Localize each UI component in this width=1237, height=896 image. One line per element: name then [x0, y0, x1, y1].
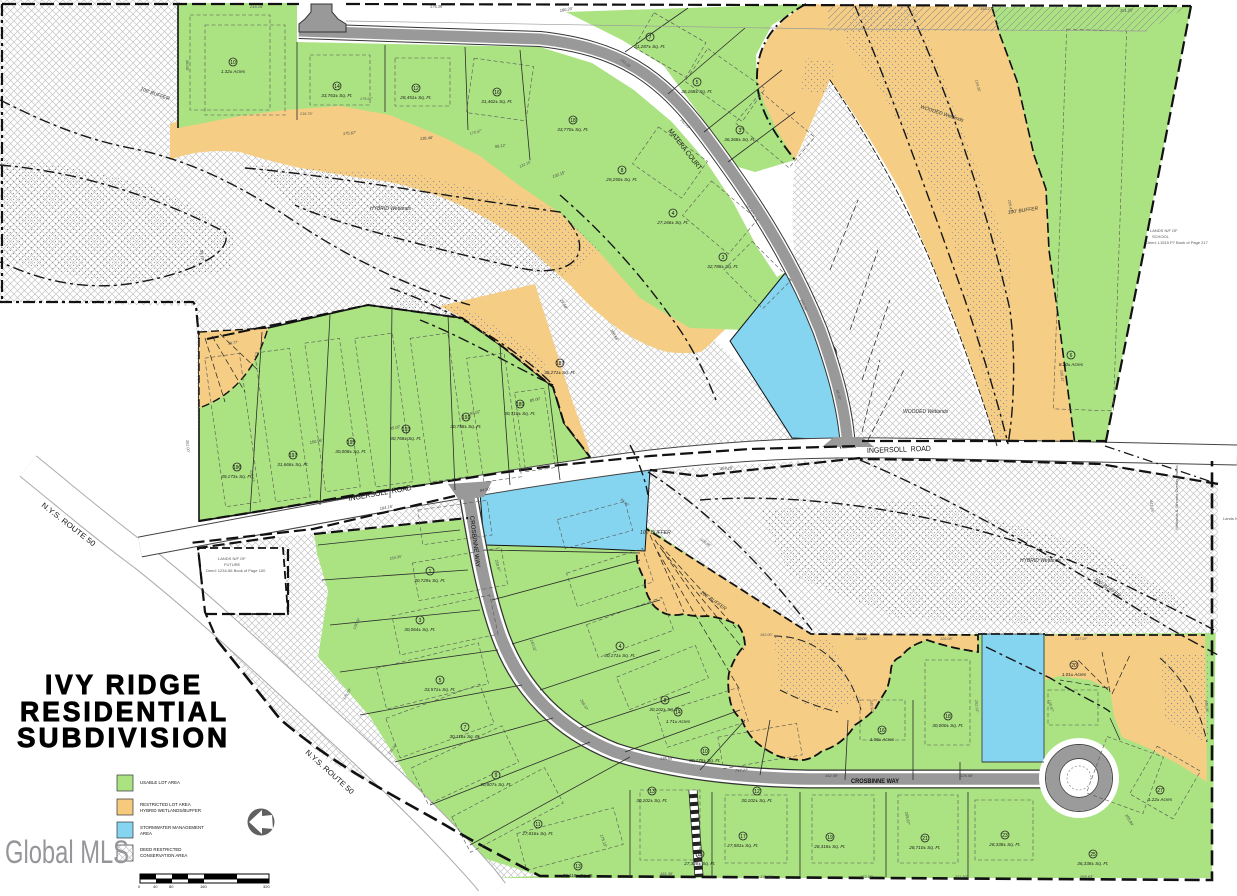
- svg-text:SCHOOL: SCHOOL: [1152, 234, 1170, 239]
- svg-text:189: 189: [516, 402, 525, 408]
- svg-text:30,118± Sq. Ft.: 30,118± Sq. Ft.: [562, 873, 593, 878]
- svg-text:16: 16: [494, 90, 500, 96]
- svg-text:175.67': 175.67': [360, 97, 373, 101]
- svg-text:195: 195: [347, 440, 356, 446]
- svg-text:27,816± Sq. Ft.: 27,816± Sq. Ft.: [521, 831, 553, 836]
- svg-text:170.93': 170.93': [760, 874, 773, 879]
- svg-text:30,758± Sq. Ft.: 30,758± Sq. Ft.: [450, 424, 481, 429]
- svg-text:1.06± Acres: 1.06± Acres: [870, 737, 895, 742]
- svg-text:16: 16: [879, 728, 885, 734]
- svg-text:193: 193: [402, 427, 411, 433]
- svg-text:1.32± Acres: 1.32± Acres: [221, 69, 246, 74]
- svg-text:AREA: AREA: [140, 831, 152, 836]
- svg-text:7: 7: [464, 725, 467, 731]
- svg-text:20: 20: [1071, 663, 1077, 669]
- svg-text:3: 3: [722, 255, 725, 261]
- svg-text:23: 23: [1002, 833, 1008, 839]
- svg-text:30,710± Sq. Ft.: 30,710± Sq. Ft.: [504, 411, 535, 416]
- svg-text:7: 7: [649, 35, 652, 41]
- svg-text:Deed: L1515 P7 Book of Page 21: Deed: L1515 P7 Book of Page 217: [1146, 240, 1209, 245]
- svg-text:36,168± Sq. Ft.: 36,168± Sq. Ft.: [681, 89, 712, 94]
- svg-text:Global MLS: Global MLS: [5, 834, 129, 870]
- svg-text:14: 14: [334, 84, 340, 90]
- svg-text:28,338± Sq. Ft.: 28,338± Sq. Ft.: [988, 842, 1020, 847]
- svg-text:33,571± Sq. Ft.: 33,571± Sq. Ft.: [424, 687, 455, 692]
- svg-text:31,462± Sq. Ft.: 31,462± Sq. Ft.: [481, 99, 512, 104]
- svg-text:30,175± Sq. Ft.: 30,175± Sq. Ft.: [689, 758, 720, 763]
- svg-text:8: 8: [664, 698, 667, 704]
- svg-text:10: 10: [230, 60, 236, 66]
- svg-text:9: 9: [495, 773, 498, 779]
- svg-text:12: 12: [754, 789, 760, 795]
- svg-text:31,666± Sq. Ft.: 31,666± Sq. Ft.: [277, 462, 308, 467]
- svg-text:30,768± Sq. Ft.: 30,768± Sq. Ft.: [390, 436, 421, 441]
- svg-text:32,788± Sq. Ft.: 32,788± Sq. Ft.: [707, 264, 738, 269]
- svg-text:19: 19: [827, 835, 833, 841]
- svg-text:25: 25: [1090, 852, 1096, 858]
- svg-text:269.63': 269.63': [1079, 874, 1093, 879]
- svg-text:28,710± Sq. Ft.: 28,710± Sq. Ft.: [908, 845, 940, 850]
- svg-text:DEED RESTRICTED: DEED RESTRICTED: [140, 847, 181, 852]
- svg-text:5: 5: [439, 678, 442, 684]
- svg-text:FUTURE: FUTURE: [224, 562, 241, 567]
- svg-text:35,271± Sq. Ft.: 35,271± Sq. Ft.: [544, 370, 575, 375]
- svg-text:172.00': 172.00': [860, 874, 873, 879]
- svg-text:31,287± Sq. Ft.: 31,287± Sq. Ft.: [634, 44, 665, 49]
- svg-text:80: 80: [169, 884, 174, 889]
- svg-text:161.36': 161.36': [660, 871, 673, 876]
- svg-text:13: 13: [575, 864, 581, 870]
- svg-text:30,116± Sq. Ft.: 30,116± Sq. Ft.: [449, 734, 480, 739]
- svg-text:4: 4: [672, 211, 675, 217]
- svg-text:8: 8: [621, 168, 624, 174]
- svg-text:162.00': 162.00': [760, 633, 773, 637]
- svg-text:29,250± Sq. Ft.: 29,250± Sq. Ft.: [605, 177, 637, 182]
- svg-text:5: 5: [696, 80, 699, 86]
- svg-text:175.38': 175.38': [430, 4, 443, 9]
- svg-text:27,166± Sq. Ft.: 27,166± Sq. Ft.: [656, 220, 688, 225]
- svg-text:1.71± Acres: 1.71± Acres: [666, 719, 691, 724]
- svg-text:126.08': 126.08': [940, 637, 953, 641]
- svg-text:30,171± Sq. Ft.: 30,171± Sq. Ft.: [604, 653, 635, 658]
- svg-text:30,807± Sq. Ft.: 30,807± Sq. Ft.: [480, 782, 511, 787]
- svg-text:30,729± Sq. Ft.: 30,729± Sq. Ft.: [414, 578, 445, 583]
- svg-text:Deed: 1234-56 Book of Page 100: Deed: 1234-56 Book of Page 100: [206, 568, 266, 573]
- svg-text:160: 160: [200, 884, 207, 889]
- svg-text:36,338± Sq. Ft.: 36,338± Sq. Ft.: [1077, 861, 1108, 866]
- svg-text:USABLE LOT AREA: USABLE LOT AREA: [140, 780, 180, 785]
- svg-text:21: 21: [922, 836, 928, 842]
- svg-text:216.75': 216.75': [299, 112, 313, 116]
- svg-text:100' BUFFER: 100' BUFFER: [640, 530, 671, 536]
- svg-text:30,008± Sq. Ft.: 30,008± Sq. Ft.: [335, 449, 366, 454]
- svg-text:STORMWATER MANAGEMENT: STORMWATER MANAGEMENT: [140, 825, 204, 830]
- svg-text:36,368± Sq. Ft.: 36,368± Sq. Ft.: [724, 137, 755, 142]
- svg-text:27,581± Sq. Ft.: 27,581± Sq. Ft.: [726, 843, 758, 848]
- svg-text:136.55': 136.55': [660, 756, 673, 761]
- svg-text:227.97': 227.97': [1074, 637, 1088, 641]
- svg-text:HYBRID Wetlands: HYBRID Wetlands: [370, 206, 412, 212]
- svg-text:4: 4: [619, 644, 622, 650]
- svg-text:39,173± Sq. Ft.: 39,173± Sq. Ft.: [221, 474, 252, 479]
- svg-text:18: 18: [570, 118, 576, 124]
- svg-text:17: 17: [740, 834, 746, 840]
- svg-text:CROSBINNE WAY: CROSBINNE WAY: [851, 778, 900, 785]
- svg-text:6: 6: [1070, 353, 1073, 359]
- svg-text:HYBRID Wetlands: HYBRID Wetlands: [1020, 558, 1062, 564]
- svg-text:30,064± Sq. Ft.: 30,064± Sq. Ft.: [404, 627, 435, 632]
- svg-text:3: 3: [739, 128, 742, 134]
- svg-text:14: 14: [675, 710, 681, 716]
- svg-text:30,000± Sq. Ft.: 30,000± Sq. Ft.: [932, 723, 963, 728]
- svg-text:216.15': 216.15': [249, 4, 263, 9]
- svg-text:320: 320: [263, 884, 270, 889]
- svg-text:162.00': 162.00': [855, 637, 868, 641]
- svg-text:LANDS N/F OF: LANDS N/F OF: [1150, 228, 1178, 233]
- svg-text:CONSERVATION AREA: CONSERVATION AREA: [140, 853, 187, 858]
- svg-text:8.20± Acres: 8.20± Acres: [1059, 362, 1084, 367]
- svg-text:27,328± Sq. Ft.: 27,328± Sq. Ft.: [683, 861, 715, 866]
- svg-text:Lands N/F: Lands N/F: [1223, 516, 1237, 521]
- svg-text:33,770± Sq. Ft.: 33,770± Sq. Ft.: [557, 127, 588, 132]
- svg-text:1: 1: [429, 569, 432, 575]
- svg-text:30,102± Sq. Ft.: 30,102± Sq. Ft.: [636, 798, 667, 803]
- svg-text:11: 11: [535, 822, 540, 828]
- svg-text:HYBRID WETLANDS/BUFFER: HYBRID WETLANDS/BUFFER: [140, 808, 201, 813]
- svg-text:39.77': 39.77': [199, 250, 205, 261]
- svg-text:111.10': 111.10': [955, 874, 968, 879]
- svg-text:18: 18: [945, 714, 951, 720]
- svg-text:187: 187: [556, 361, 565, 367]
- svg-text:Wetlands & Streams Overlay Dis: Wetlands & Streams Overlay District: [1174, 465, 1179, 530]
- svg-text:126.08': 126.08': [960, 773, 973, 778]
- svg-text:10: 10: [702, 749, 708, 755]
- svg-text:LANDS N/F OF: LANDS N/F OF: [218, 556, 246, 561]
- svg-text:SUBDIVISION: SUBDIVISION: [17, 722, 230, 753]
- svg-text:3: 3: [419, 618, 422, 624]
- svg-text:36.00': 36.00': [185, 60, 190, 71]
- svg-text:40: 40: [153, 884, 158, 889]
- svg-text:191: 191: [462, 415, 471, 421]
- svg-text:1.22± Acres: 1.22± Acres: [1148, 797, 1173, 802]
- svg-text:WOODED Wetlands: WOODED Wetlands: [903, 409, 949, 415]
- svg-text:13: 13: [649, 789, 655, 795]
- svg-text:RESTRICTED LOT AREA: RESTRICTED LOT AREA: [140, 802, 191, 807]
- svg-text:27: 27: [1157, 788, 1163, 794]
- svg-text:196: 196: [233, 465, 242, 471]
- svg-text:162.08': 162.08': [825, 773, 838, 778]
- svg-text:33,763± Sq. Ft.: 33,763± Sq. Ft.: [321, 93, 352, 98]
- svg-text:1.01± Acres: 1.01± Acres: [1062, 672, 1087, 677]
- svg-text:747.77': 747.77': [735, 768, 748, 773]
- svg-text:12: 12: [413, 86, 419, 92]
- svg-text:197: 197: [289, 453, 298, 459]
- svg-text:164.18': 164.18': [720, 465, 733, 471]
- svg-text:28,318± Sq. Ft.: 28,318± Sq. Ft.: [813, 844, 845, 849]
- svg-text:30,102± Sq. Ft.: 30,102± Sq. Ft.: [741, 798, 772, 803]
- svg-text:28,451± Sq. Ft.: 28,451± Sq. Ft.: [399, 95, 431, 100]
- svg-text:15: 15: [697, 852, 703, 858]
